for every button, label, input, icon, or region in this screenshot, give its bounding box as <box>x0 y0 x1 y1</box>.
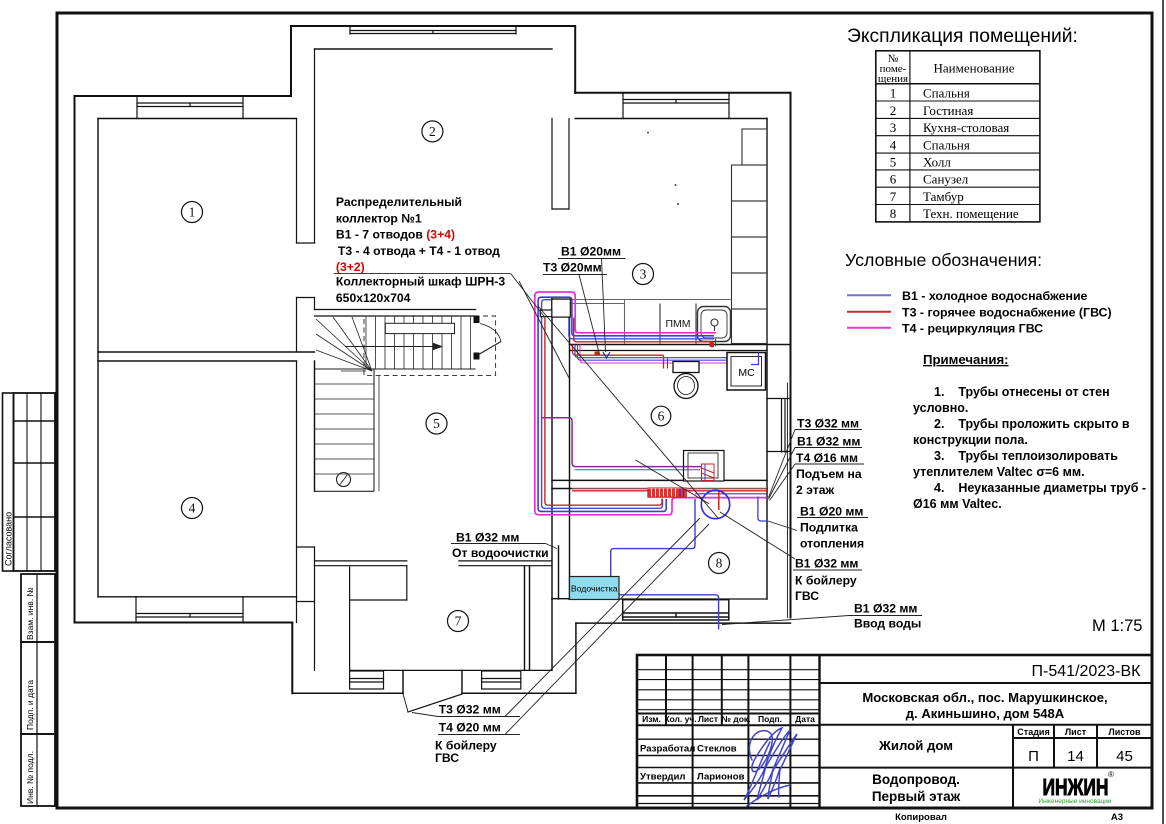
svg-text:Первый этаж: Первый этаж <box>872 789 961 804</box>
svg-text:В1 Ø32 мм: В1 Ø32 мм <box>795 557 858 571</box>
svg-text:Т3 - 4 отвода + Т4 - 1 отвод: Т3 - 4 отвода + Т4 - 1 отвод <box>338 244 500 258</box>
svg-text:8: 8 <box>716 556 723 571</box>
svg-text:ПММ: ПММ <box>665 318 690 330</box>
svg-text:коллектор №1: коллектор №1 <box>336 211 422 225</box>
svg-text:В1 Ø20мм: В1 Ø20мм <box>561 245 621 259</box>
svg-text:Примечания:: Примечания: <box>923 352 1009 367</box>
svg-text:Т4 Ø16 мм: Т4 Ø16 мм <box>796 451 858 465</box>
svg-text:14: 14 <box>1067 748 1084 765</box>
svg-text:отопления: отопления <box>800 537 864 551</box>
svg-text:2: 2 <box>890 103 897 118</box>
svg-text:утеплителем Valtec σ=6 мм.: утеплителем Valtec σ=6 мм. <box>913 465 1085 479</box>
svg-text:Экспликация помещений:: Экспликация помещений: <box>847 26 1078 47</box>
svg-text:Разработал: Разработал <box>640 744 695 755</box>
svg-text:щения: щения <box>878 73 908 85</box>
svg-text:(3+2): (3+2) <box>336 260 365 274</box>
svg-text:45: 45 <box>1116 748 1133 765</box>
svg-text:Водопровод.: Водопровод. <box>872 772 960 787</box>
svg-text:Коллекторный шкаф ШРН-3: Коллекторный шкаф ШРН-3 <box>336 275 505 289</box>
svg-text:3: 3 <box>890 120 897 135</box>
svg-text:Кол. уч.: Кол. уч. <box>664 714 696 724</box>
svg-text:6: 6 <box>658 409 665 424</box>
svg-text:Спальня: Спальня <box>923 138 970 153</box>
svg-text:Санузел: Санузел <box>923 172 969 187</box>
svg-text:Ø16 мм Valtec.: Ø16 мм Valtec. <box>913 497 1002 511</box>
svg-text:П: П <box>1028 748 1039 765</box>
svg-text:Лист: Лист <box>1065 727 1087 737</box>
svg-text:К бойлеру: К бойлеру <box>795 574 857 588</box>
svg-text:конструкции пола.: конструкции пола. <box>913 433 1028 447</box>
svg-text:Подп. и дата: Подп. и дата <box>25 680 35 730</box>
svg-text:Инженерные инновации: Инженерные инновации <box>1038 798 1112 805</box>
svg-text:Подп.: Подп. <box>758 714 782 724</box>
svg-text:Лист: Лист <box>698 714 718 724</box>
svg-text:М 1:75: М 1:75 <box>1092 617 1142 635</box>
svg-text:От водоочистки: От водоочистки <box>452 546 549 560</box>
svg-text:5: 5 <box>890 155 897 170</box>
svg-text:Гостиная: Гостиная <box>923 103 973 118</box>
svg-text:7: 7 <box>455 614 462 629</box>
svg-text:Копировал: Копировал <box>895 812 947 823</box>
svg-text:2: 2 <box>429 124 436 139</box>
svg-text:ГВС: ГВС <box>435 751 459 765</box>
svg-text:®: ® <box>1108 770 1114 779</box>
svg-text:1: 1 <box>189 205 196 220</box>
svg-text:В1 Ø32 мм: В1 Ø32 мм <box>797 435 860 449</box>
svg-text:4. Неуказанные диаметры тру: 4. Неуказанные диаметры труб - <box>934 481 1146 495</box>
svg-text:2 этаж: 2 этаж <box>796 483 834 497</box>
svg-text:А3: А3 <box>1111 812 1123 823</box>
svg-text:Водочистка: Водочистка <box>571 584 618 594</box>
svg-text:Стеклов: Стеклов <box>697 744 737 755</box>
svg-text:4: 4 <box>890 138 897 153</box>
svg-text:П-541/2023-ВК: П-541/2023-ВК <box>1032 663 1142 680</box>
svg-text:Т3 - горячее водоснабжение (ГВ: Т3 - горячее водоснабжение (ГВС) <box>902 306 1112 320</box>
svg-text:условно.: условно. <box>913 401 968 415</box>
svg-text:Т3 Ø32 мм: Т3 Ø32 мм <box>797 417 859 431</box>
svg-text:Т4 - рециркуляция ГВС: Т4 - рециркуляция ГВС <box>902 322 1043 336</box>
svg-text:Распределительный: Распределительный <box>336 195 462 209</box>
svg-text:6: 6 <box>890 172 897 187</box>
svg-text:3. Трубы теплоизолировать: 3. Трубы теплоизолировать <box>934 449 1118 463</box>
svg-text:650х120х704: 650х120х704 <box>336 291 411 305</box>
svg-text:Листов: Листов <box>1108 727 1141 737</box>
svg-text:Т3 Ø20мм: Т3 Ø20мм <box>543 261 602 275</box>
svg-text:3: 3 <box>640 267 647 282</box>
svg-text:Жилой дом: Жилой дом <box>878 738 953 753</box>
svg-text:МС: МС <box>738 367 755 379</box>
svg-text:Подъем на: Подъем на <box>796 467 862 481</box>
svg-text:Утвердил: Утвердил <box>640 772 685 783</box>
svg-text:Дата: Дата <box>795 714 815 724</box>
svg-text:7: 7 <box>890 189 897 204</box>
svg-text:Кухня-столовая: Кухня-столовая <box>923 120 1009 135</box>
svg-text:Московская обл., пос. Марушкин: Московская обл., пос. Марушкинское, <box>862 690 1107 705</box>
svg-text:5: 5 <box>433 416 440 431</box>
svg-text:В1 - 7 отводов (3+4): В1 - 7 отводов (3+4) <box>336 228 455 242</box>
svg-text:Тамбур: Тамбур <box>923 189 964 204</box>
svg-text:Условные обозначения:: Условные обозначения: <box>845 250 1042 270</box>
svg-text:Согласовано: Согласовано <box>4 512 14 566</box>
svg-text:Спальня: Спальня <box>923 86 970 101</box>
svg-text:1. Трубы отнесены от стен: 1. Трубы отнесены от стен <box>934 385 1110 399</box>
svg-text:Наименование: Наименование <box>934 61 1015 76</box>
svg-text:Холл: Холл <box>923 155 951 170</box>
svg-text:д. Акиньшино, дом 548А: д. Акиньшино, дом 548А <box>906 706 1065 721</box>
svg-text:Ввод воды: Ввод воды <box>854 617 921 631</box>
svg-text:Изм.: Изм. <box>642 714 661 724</box>
svg-text:В1 Ø32 мм: В1 Ø32 мм <box>854 602 917 616</box>
svg-text:Взам. инв. №: Взам. инв. № <box>25 587 35 640</box>
svg-text:4: 4 <box>189 501 196 516</box>
svg-text:Инв. № подл.: Инв. № подл. <box>25 751 35 804</box>
svg-text:Стадия: Стадия <box>1017 727 1049 737</box>
svg-text:Подлитка: Подлитка <box>800 521 858 535</box>
svg-text:Т3 Ø32 мм: Т3 Ø32 мм <box>439 703 501 717</box>
svg-text:8: 8 <box>890 206 897 221</box>
svg-text:В1 Ø20 мм: В1 Ø20 мм <box>800 505 863 519</box>
svg-text:Ларионов: Ларионов <box>697 772 745 783</box>
svg-text:Т4 Ø20 мм: Т4 Ø20 мм <box>439 721 501 735</box>
svg-text:1: 1 <box>890 86 897 101</box>
svg-text:ГВС: ГВС <box>795 589 819 603</box>
svg-text:2. Трубы проложить скрыто в: 2. Трубы проложить скрыто в <box>934 417 1130 431</box>
svg-text:ИНЖИН: ИНЖИН <box>1043 774 1109 800</box>
svg-text:Техн. помещение: Техн. помещение <box>923 206 1019 221</box>
svg-text:В1 Ø32 мм: В1 Ø32 мм <box>456 531 519 545</box>
svg-text:В1 - холодное водоснабжение: В1 - холодное водоснабжение <box>902 289 1088 303</box>
svg-text:№ док.: № док. <box>721 714 750 724</box>
